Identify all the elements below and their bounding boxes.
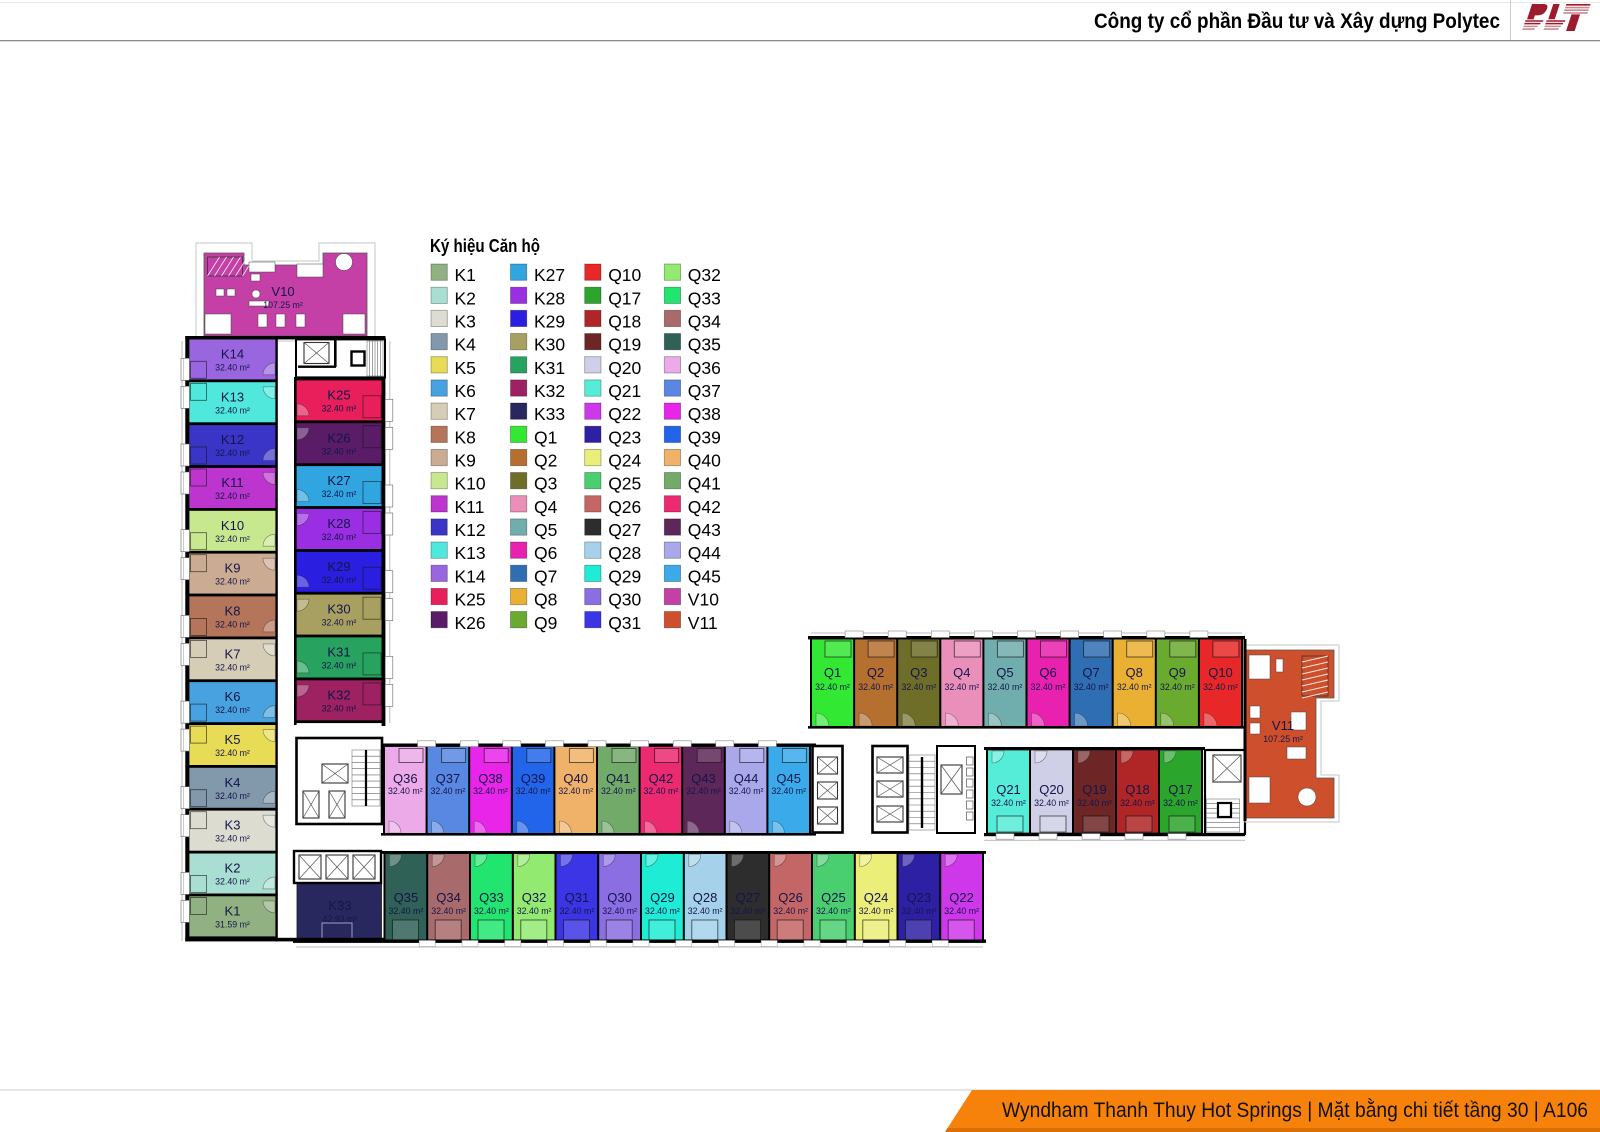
svg-text:K11: K11 [221, 475, 243, 490]
svg-text:Q37: Q37 [436, 771, 461, 786]
svg-text:Q22: Q22 [949, 890, 974, 905]
svg-text:32.40 m²: 32.40 m² [322, 661, 357, 671]
svg-text:Q45: Q45 [776, 771, 801, 786]
svg-text:K26: K26 [327, 430, 350, 445]
svg-text:K5: K5 [455, 358, 476, 378]
svg-text:K27: K27 [327, 473, 350, 488]
svg-text:32.40 m²: 32.40 m² [1077, 798, 1112, 808]
svg-text:32.40 m²: 32.40 m² [902, 906, 937, 916]
svg-text:32.40 m²: 32.40 m² [729, 786, 764, 796]
svg-text:K5: K5 [225, 732, 241, 747]
svg-text:K10: K10 [455, 474, 486, 494]
svg-text:32.40 m²: 32.40 m² [1160, 682, 1195, 692]
svg-text:Q10: Q10 [608, 265, 641, 285]
svg-text:Wyndham Thanh Thuy Hot Springs: Wyndham Thanh Thuy Hot Springs | Mặt bằn… [1002, 1097, 1588, 1122]
svg-text:Q38: Q38 [688, 404, 721, 424]
svg-text:Q28: Q28 [608, 543, 641, 563]
svg-text:32.40 m²: 32.40 m² [816, 906, 851, 916]
svg-text:Q30: Q30 [608, 590, 641, 610]
svg-text:Q27: Q27 [608, 520, 641, 540]
svg-text:Q32: Q32 [688, 265, 721, 285]
svg-text:32.40 m²: 32.40 m² [215, 877, 250, 887]
svg-text:Q3: Q3 [910, 665, 927, 680]
svg-text:K14: K14 [455, 566, 486, 586]
svg-text:32.40 m²: 32.40 m² [517, 906, 552, 916]
svg-text:32.40 m²: 32.40 m² [859, 906, 894, 916]
svg-text:32.40 m²: 32.40 m² [322, 446, 357, 456]
svg-text:Q1: Q1 [534, 427, 557, 447]
svg-text:Q17: Q17 [608, 288, 641, 308]
svg-text:32.40 m²: 32.40 m² [645, 906, 680, 916]
svg-text:32.40 m²: 32.40 m² [215, 448, 250, 458]
svg-text:32.40 m²: 32.40 m² [215, 491, 250, 501]
svg-text:Q17: Q17 [1168, 782, 1193, 797]
svg-text:K8: K8 [225, 604, 241, 619]
svg-text:32.40 m²: 32.40 m² [815, 682, 850, 692]
svg-text:Q21: Q21 [996, 782, 1021, 797]
svg-text:Q35: Q35 [394, 890, 419, 905]
svg-text:Q45: Q45 [688, 566, 721, 586]
svg-text:K10: K10 [221, 518, 244, 533]
svg-text:32.40 m²: 32.40 m² [322, 618, 357, 628]
svg-text:K13: K13 [221, 389, 244, 404]
svg-text:Q25: Q25 [821, 890, 846, 905]
svg-text:Công ty cổ phần Đầu tư và Xây: Công ty cổ phần Đầu tư và Xây dựng Polyt… [1094, 10, 1500, 33]
svg-text:K29: K29 [534, 312, 565, 332]
svg-text:Q30: Q30 [607, 890, 632, 905]
svg-text:Q40: Q40 [688, 451, 721, 471]
svg-text:Q1: Q1 [824, 665, 841, 680]
svg-text:K9: K9 [455, 451, 476, 471]
svg-text:Q19: Q19 [608, 335, 641, 355]
svg-text:32.40 m²: 32.40 m² [322, 575, 357, 585]
svg-text:32.40 m²: 32.40 m² [474, 906, 509, 916]
svg-text:32.40 m²: 32.40 m² [322, 532, 357, 542]
svg-text:K25: K25 [327, 387, 350, 402]
svg-text:V10: V10 [688, 590, 719, 610]
svg-text:32.40 m²: 32.40 m² [944, 906, 979, 916]
svg-text:Q19: Q19 [1082, 782, 1107, 797]
svg-text:32.40 m²: 32.40 m² [688, 906, 723, 916]
svg-text:Q33: Q33 [688, 288, 721, 308]
svg-text:Q35: Q35 [688, 335, 721, 355]
svg-text:K31: K31 [327, 645, 350, 660]
svg-text:42.93 m²: 42.93 m² [323, 914, 358, 924]
svg-text:K4: K4 [225, 775, 241, 790]
svg-text:K32: K32 [534, 381, 565, 401]
svg-text:Q7: Q7 [534, 566, 557, 586]
svg-text:32.40 m²: 32.40 m² [215, 748, 250, 758]
svg-text:32.40 m²: 32.40 m² [215, 534, 250, 544]
svg-text:Q18: Q18 [608, 312, 641, 332]
svg-text:Q23: Q23 [907, 890, 932, 905]
svg-text:K3: K3 [225, 818, 241, 833]
svg-text:Q4: Q4 [534, 497, 558, 517]
svg-text:32.40 m²: 32.40 m² [516, 786, 551, 796]
svg-text:Q44: Q44 [734, 771, 759, 786]
svg-text:V10: V10 [271, 284, 294, 299]
svg-text:Q42: Q42 [688, 497, 721, 517]
svg-text:Q2: Q2 [867, 665, 884, 680]
svg-text:32.40 m²: 32.40 m² [1074, 682, 1109, 692]
svg-text:32.40 m²: 32.40 m² [1203, 682, 1238, 692]
svg-text:Q20: Q20 [608, 358, 641, 378]
svg-text:K1: K1 [225, 903, 241, 918]
svg-text:Q32: Q32 [522, 890, 547, 905]
svg-text:K7: K7 [225, 646, 241, 661]
svg-text:Q23: Q23 [608, 427, 641, 447]
svg-text:K2: K2 [225, 861, 241, 876]
svg-text:Q31: Q31 [565, 890, 590, 905]
svg-text:Q20: Q20 [1039, 782, 1064, 797]
svg-text:Q24: Q24 [608, 451, 641, 471]
svg-text:Q26: Q26 [608, 497, 641, 517]
svg-text:Q7: Q7 [1082, 665, 1099, 680]
svg-text:Q36: Q36 [393, 771, 418, 786]
svg-text:K1: K1 [455, 265, 476, 285]
svg-text:32.40 m²: 32.40 m² [991, 798, 1026, 808]
svg-text:Q40: Q40 [563, 771, 588, 786]
svg-text:K12: K12 [455, 520, 486, 540]
svg-text:K29: K29 [327, 559, 350, 574]
svg-text:Q6: Q6 [534, 543, 557, 563]
svg-text:32.40 m²: 32.40 m² [601, 786, 636, 796]
svg-text:Q24: Q24 [864, 890, 889, 905]
svg-text:32.40 m²: 32.40 m² [215, 662, 250, 672]
svg-text:107.25 m²: 107.25 m² [1263, 734, 1303, 744]
svg-text:Q31: Q31 [608, 613, 641, 633]
svg-text:32.40 m²: 32.40 m² [1031, 682, 1066, 692]
svg-text:K31: K31 [534, 358, 565, 378]
svg-text:32.40 m²: 32.40 m² [215, 362, 250, 372]
svg-text:Q33: Q33 [479, 890, 504, 905]
svg-text:K26: K26 [455, 613, 486, 633]
svg-text:K12: K12 [221, 432, 244, 447]
svg-text:32.40 m²: 32.40 m² [1034, 798, 1069, 808]
svg-text:32.40 m²: 32.40 m² [560, 906, 595, 916]
svg-text:K6: K6 [225, 689, 241, 704]
svg-text:Q38: Q38 [478, 771, 503, 786]
svg-text:Q27: Q27 [736, 890, 761, 905]
svg-text:32.40 m²: 32.40 m² [1120, 798, 1155, 808]
svg-text:Q4: Q4 [953, 665, 970, 680]
svg-text:Q2: Q2 [534, 451, 557, 471]
svg-text:32.40 m²: 32.40 m² [988, 682, 1023, 692]
svg-text:32.40 m²: 32.40 m² [322, 403, 357, 413]
svg-text:32.40 m²: 32.40 m² [686, 786, 721, 796]
svg-text:Q3: Q3 [534, 474, 557, 494]
svg-text:32.40 m²: 32.40 m² [773, 906, 808, 916]
svg-text:32.40 m²: 32.40 m² [215, 834, 250, 844]
svg-text:Q5: Q5 [996, 665, 1013, 680]
svg-text:Q36: Q36 [688, 358, 721, 378]
svg-text:K7: K7 [455, 404, 476, 424]
svg-text:Q37: Q37 [688, 381, 721, 401]
svg-text:32.40 m²: 32.40 m² [215, 405, 250, 415]
svg-text:32.40 m²: 32.40 m² [389, 906, 424, 916]
svg-text:K30: K30 [327, 602, 350, 617]
svg-text:Q9: Q9 [1169, 665, 1186, 680]
svg-text:32.40 m²: 32.40 m² [215, 577, 250, 587]
svg-text:K11: K11 [455, 497, 485, 517]
svg-text:32.40 m²: 32.40 m² [558, 786, 593, 796]
svg-text:K14: K14 [221, 346, 244, 361]
svg-text:Q41: Q41 [688, 474, 721, 494]
svg-text:Q9: Q9 [534, 613, 557, 633]
svg-text:Q25: Q25 [608, 474, 641, 494]
svg-text:Q29: Q29 [650, 890, 675, 905]
svg-text:Q39: Q39 [521, 771, 546, 786]
svg-text:32.40 m²: 32.40 m² [944, 682, 979, 692]
svg-text:Q43: Q43 [691, 771, 716, 786]
svg-text:32.40 m²: 32.40 m² [215, 705, 250, 715]
svg-text:K27: K27 [534, 265, 565, 285]
svg-text:K8: K8 [455, 427, 476, 447]
svg-text:K4: K4 [455, 335, 477, 355]
svg-text:32.40 m²: 32.40 m² [731, 906, 766, 916]
svg-text:Q39: Q39 [688, 427, 721, 447]
svg-text:Q42: Q42 [649, 771, 674, 786]
svg-text:32.40 m²: 32.40 m² [322, 489, 357, 499]
svg-text:32.40 m²: 32.40 m² [215, 620, 250, 630]
svg-text:Q44: Q44 [688, 543, 721, 563]
svg-text:K33: K33 [534, 404, 565, 424]
svg-text:32.40 m²: 32.40 m² [473, 786, 508, 796]
svg-text:Q8: Q8 [1126, 665, 1143, 680]
svg-text:Q28: Q28 [693, 890, 718, 905]
svg-text:32.40 m²: 32.40 m² [1163, 798, 1198, 808]
svg-text:Q6: Q6 [1039, 665, 1056, 680]
svg-text:K33: K33 [328, 898, 351, 913]
svg-text:32.40 m²: 32.40 m² [858, 682, 893, 692]
svg-text:Q29: Q29 [608, 566, 641, 586]
svg-text:32.40 m²: 32.40 m² [901, 682, 936, 692]
svg-text:Q21: Q21 [608, 381, 641, 401]
svg-text:K28: K28 [327, 516, 350, 531]
svg-text:K3: K3 [455, 312, 476, 332]
svg-text:K32: K32 [327, 687, 350, 702]
svg-text:32.40 m²: 32.40 m² [388, 786, 423, 796]
svg-text:Ký hiệu Căn hộ: Ký hiệu Căn hộ [430, 236, 540, 256]
svg-text:Q34: Q34 [688, 312, 721, 332]
svg-text:Q41: Q41 [606, 771, 631, 786]
svg-text:32.40 m²: 32.40 m² [322, 703, 357, 713]
svg-text:K25: K25 [455, 590, 486, 610]
svg-text:Q8: Q8 [534, 590, 557, 610]
svg-text:Q18: Q18 [1125, 782, 1150, 797]
svg-text:K6: K6 [455, 381, 476, 401]
svg-text:32.40 m²: 32.40 m² [215, 791, 250, 801]
svg-text:K28: K28 [534, 288, 565, 308]
svg-text:Q26: Q26 [778, 890, 803, 905]
svg-text:32.40 m²: 32.40 m² [771, 786, 806, 796]
svg-text:Q43: Q43 [688, 520, 721, 540]
svg-text:V11: V11 [1272, 718, 1294, 733]
svg-text:K9: K9 [225, 561, 241, 576]
svg-text:32.40 m²: 32.40 m² [644, 786, 679, 796]
svg-text:K2: K2 [455, 288, 476, 308]
svg-text:K30: K30 [534, 335, 565, 355]
svg-text:32.40 m²: 32.40 m² [1117, 682, 1152, 692]
svg-text:32.40 m²: 32.40 m² [602, 906, 637, 916]
svg-text:Q5: Q5 [534, 520, 557, 540]
svg-text:32.40 m²: 32.40 m² [431, 786, 466, 796]
svg-text:V11: V11 [688, 613, 718, 633]
svg-text:Q22: Q22 [608, 404, 641, 424]
svg-text:31.59 m²: 31.59 m² [215, 919, 250, 929]
svg-text:32.40 m²: 32.40 m² [431, 906, 466, 916]
svg-text:K13: K13 [455, 543, 486, 563]
svg-text:Q10: Q10 [1208, 665, 1233, 680]
svg-text:107.25 m²: 107.25 m² [263, 300, 303, 310]
svg-text:Q34: Q34 [436, 890, 461, 905]
